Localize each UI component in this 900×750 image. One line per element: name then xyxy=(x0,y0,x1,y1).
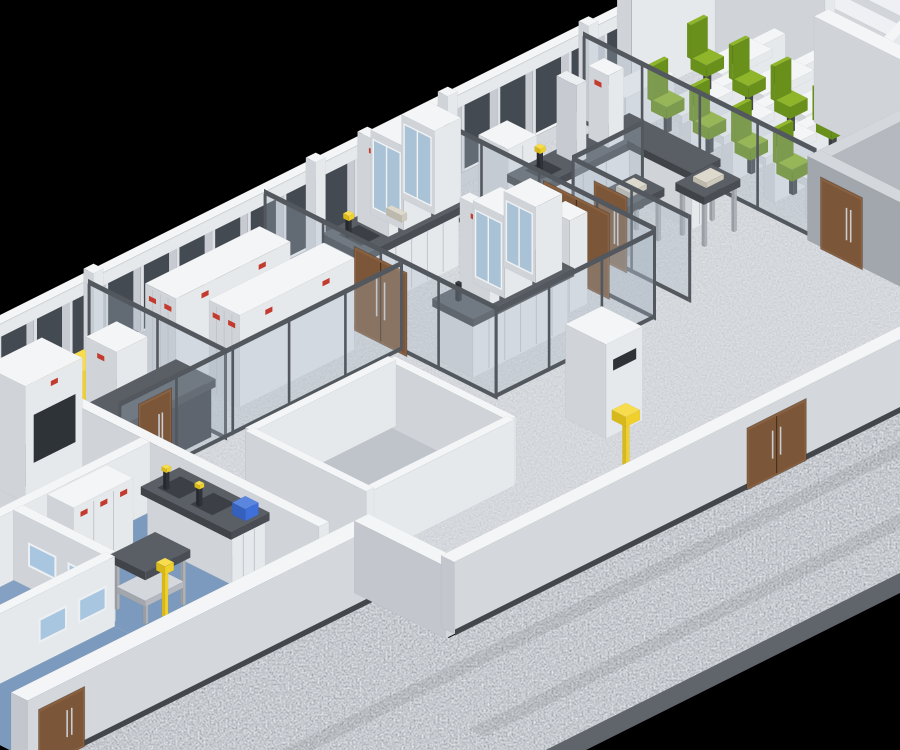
lab1-bench1-cabinet-2 xyxy=(402,101,461,215)
isometric-lab-floorplan-render xyxy=(0,0,900,750)
scene-canvas xyxy=(0,0,900,750)
table2-leg-3 xyxy=(702,200,707,247)
lab2-instrument-tower-1 xyxy=(557,71,587,164)
table2-leg-4 xyxy=(732,185,737,232)
lab1-bench2-cabinet-2 xyxy=(504,178,562,283)
